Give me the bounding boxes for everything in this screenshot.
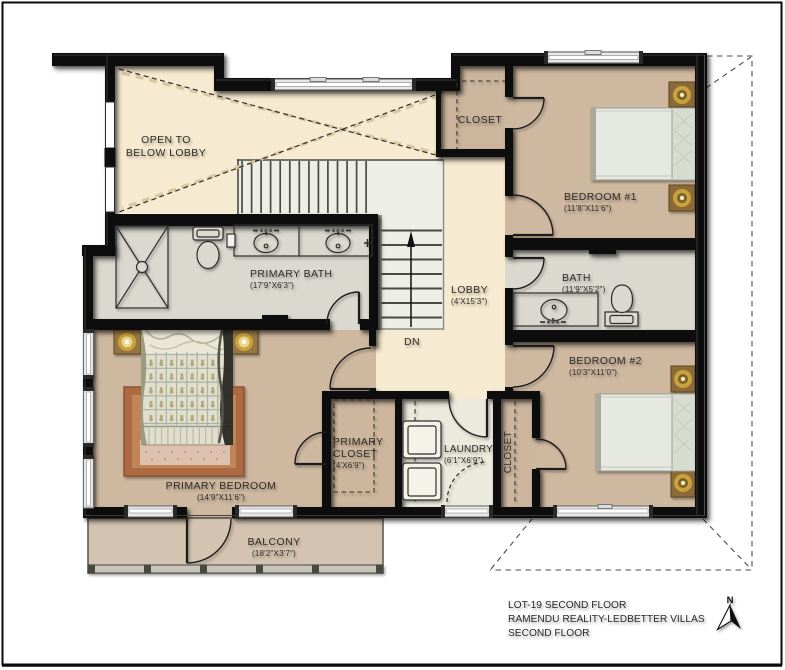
- svg-text:OPEN TO: OPEN TO: [141, 134, 191, 146]
- svg-text:(18'2"X3'7"): (18'2"X3'7"): [252, 549, 296, 558]
- svg-text:PRIMARY BEDROOM: PRIMARY BEDROOM: [166, 480, 277, 492]
- svg-text:CLOSET: CLOSET: [503, 431, 514, 473]
- svg-text:BEDROOM #1: BEDROOM #1: [564, 191, 637, 203]
- svg-text:LOBBY: LOBBY: [451, 284, 488, 296]
- svg-text:(11'9"X5'2"): (11'9"X5'2"): [562, 285, 606, 294]
- svg-text:(11'8"X11'6"): (11'8"X11'6"): [564, 204, 612, 213]
- svg-text:RAMENDU REALITY-LEDBETTER VILL: RAMENDU REALITY-LEDBETTER VILLAS: [508, 614, 705, 625]
- svg-text:DN: DN: [404, 336, 420, 348]
- svg-text:CLOSET: CLOSET: [458, 114, 503, 126]
- svg-text:(4'X6'9"): (4'X6'9"): [333, 461, 365, 470]
- svg-text:PRIMARY: PRIMARY: [333, 436, 383, 448]
- svg-text:BATH: BATH: [562, 272, 591, 284]
- svg-text:(17'9"X6'3"): (17'9"X6'3"): [250, 281, 294, 290]
- svg-text:(10'3"X11'0"): (10'3"X11'0"): [569, 368, 617, 377]
- svg-text:(14'9"X11'6"): (14'9"X11'6"): [197, 493, 245, 502]
- svg-text:PRIMARY BATH: PRIMARY BATH: [250, 268, 332, 280]
- svg-text:BEDROOM #2: BEDROOM #2: [569, 355, 642, 367]
- svg-text:SECOND FLOOR: SECOND FLOOR: [508, 628, 590, 639]
- svg-text:LOT-19 SECOND FLOOR: LOT-19 SECOND FLOOR: [508, 600, 626, 611]
- svg-text:BELOW LOBBY: BELOW LOBBY: [126, 147, 206, 159]
- svg-text:LAUNDRY: LAUNDRY: [444, 444, 493, 455]
- svg-text:(4'X15'3"): (4'X15'3"): [451, 297, 487, 306]
- svg-text:(6'1"X6'9"): (6'1"X6'9"): [444, 456, 484, 465]
- svg-text:BALCONY: BALCONY: [248, 536, 301, 548]
- svg-text:CLOSET: CLOSET: [333, 448, 378, 460]
